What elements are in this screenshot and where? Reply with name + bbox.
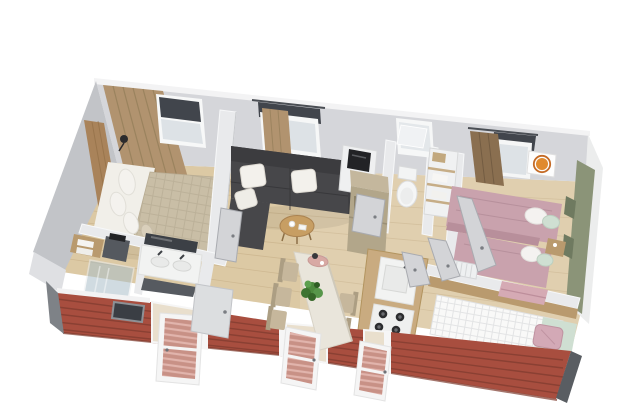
door-handle [480,246,484,250]
sofa-cushion-2 [291,169,317,193]
lion-picture-art [536,158,548,170]
bathroom-door [191,284,233,338]
nightstand-item [553,243,557,247]
burner-1-cap [381,312,384,315]
door-handle [446,264,449,267]
coffee-table-cup [289,221,295,227]
glazed-door-centre [281,327,321,390]
door-handle [231,234,234,237]
wc-window-open-pane [397,125,427,148]
wall-lamp [120,135,128,143]
microwave [347,149,371,172]
door-handle [383,370,386,373]
door-handle [223,310,227,314]
floorplan-svg [0,0,640,417]
door-handle [165,348,168,351]
tray-vase [312,253,318,259]
burner-3-cap [377,325,380,328]
door-handle [312,358,315,361]
single-bed-pink-pillow [532,324,563,351]
burner-2-cap [398,315,401,318]
tray-cup [320,261,324,265]
door-handle [373,215,376,218]
door-wc [352,194,385,237]
burner-4-cap [394,328,397,331]
floorplan-render [0,0,640,417]
coffee-table-card [299,225,307,230]
door-handle [413,268,416,271]
sofa-cushion-1 [240,163,267,188]
twin-window-glass [498,144,528,175]
shower-low-window [112,302,144,322]
glazed-door-right [354,341,391,401]
coffee-table-top [280,216,314,237]
toilet-tank [398,166,417,181]
dining-chair-left-3 [265,306,287,332]
